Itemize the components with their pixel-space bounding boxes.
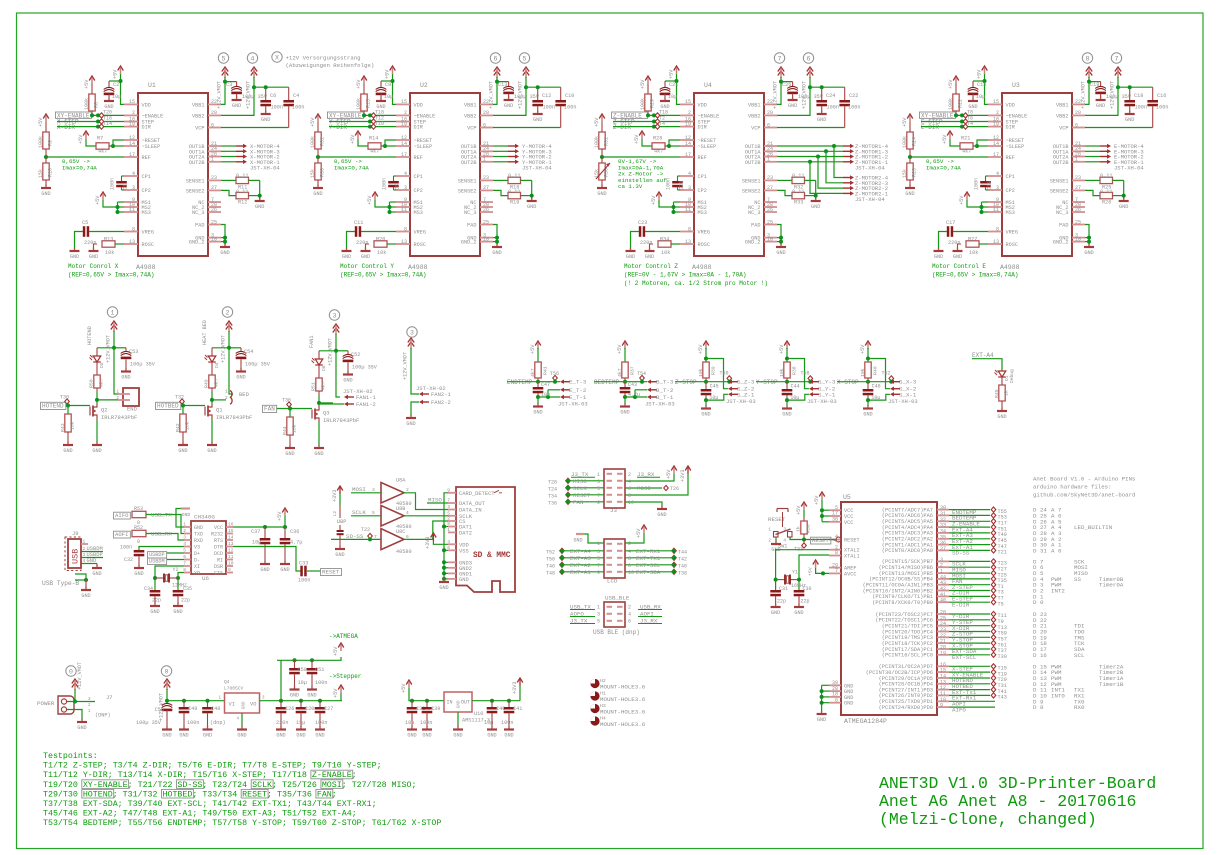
- svg-text:R44: R44: [282, 426, 288, 435]
- svg-text:4k7: 4k7: [962, 149, 971, 155]
- svg-text:17: 17: [129, 152, 135, 158]
- svg-text:IRLR7843PbF: IRLR7843PbF: [323, 417, 359, 424]
- svg-text:10µ: 10µ: [976, 94, 985, 100]
- svg-text:+5V: +5V: [367, 195, 373, 205]
- svg-text:25: 25: [483, 219, 489, 225]
- svg-text:100n: 100n: [564, 105, 576, 111]
- svg-text:7: 7: [597, 563, 600, 569]
- svg-text:VDD: VDD: [698, 102, 707, 108]
- svg-text:OUT2B: OUT2B: [1053, 160, 1069, 166]
- svg-text:19: 19: [129, 121, 135, 127]
- svg-text:GND: GND: [459, 577, 469, 583]
- svg-text:+5V: +5V: [112, 69, 118, 79]
- svg-text:(Abzweigungen Reihenfolge): (Abzweigungen Reihenfolge): [286, 62, 375, 69]
- svg-text:VBB2: VBB2: [1056, 113, 1068, 119]
- svg-text:C17: C17: [946, 220, 955, 226]
- svg-text:SD-SS: SD-SS: [952, 550, 970, 557]
- svg-text:EXT-RX1: EXT-RX1: [636, 548, 661, 555]
- svg-text:4k7: 4k7: [617, 368, 623, 377]
- svg-text:+5V: +5V: [796, 505, 802, 515]
- svg-text:U1: U1: [148, 82, 156, 89]
- svg-text:DATA_OUT: DATA_OUT: [459, 501, 486, 507]
- svg-text:100k: 100k: [948, 98, 954, 110]
- svg-text:4k7: 4k7: [98, 149, 107, 155]
- svg-text:100µ 35V: 100µ 35V: [136, 720, 162, 726]
- svg-text:IRLR7843PbF: IRLR7843PbF: [216, 414, 252, 421]
- svg-text:+5V: +5V: [814, 495, 820, 505]
- svg-text:(REF=0,65V > Imax=0,74A): (REF=0,65V > Imax=0,74A): [340, 272, 426, 279]
- svg-text:40580: 40580: [396, 549, 412, 555]
- svg-text:ca 1.3V: ca 1.3V: [618, 183, 643, 190]
- svg-text:R12: R12: [238, 200, 247, 206]
- svg-text:C53: C53: [129, 349, 138, 355]
- svg-text:17: 17: [685, 152, 691, 158]
- svg-text:15k: 15k: [310, 169, 316, 178]
- svg-text:0: 0: [137, 539, 140, 545]
- svg-text:220n: 220n: [640, 240, 652, 246]
- svg-text:C33: C33: [299, 561, 308, 567]
- svg-text:6: 6: [628, 618, 631, 624]
- svg-text:+5V: +5V: [668, 69, 674, 79]
- svg-text:GND: GND: [307, 693, 316, 699]
- svg-text:T21: T21: [998, 550, 1007, 556]
- svg-text:GND: GND: [817, 717, 826, 723]
- svg-text:R37: R37: [630, 366, 636, 375]
- svg-text:27: 27: [211, 185, 217, 191]
- svg-text:C9: C9: [385, 82, 391, 88]
- svg-text:13: 13: [993, 239, 999, 245]
- svg-text:VBB1: VBB1: [1056, 102, 1068, 108]
- svg-text:2: 2: [404, 110, 407, 116]
- svg-text:11: 11: [228, 554, 234, 560]
- svg-text:GND: GND: [817, 117, 826, 123]
- svg-text:1: 1: [597, 472, 600, 478]
- svg-text:SENSE2: SENSE2: [186, 188, 205, 194]
- svg-text:GND: GND: [597, 191, 606, 197]
- svg-text:100µ 35V: 100µ 35V: [130, 362, 156, 368]
- svg-text:19: 19: [940, 650, 946, 656]
- svg-text:C3: C3: [226, 82, 232, 88]
- svg-text:100n: 100n: [120, 545, 132, 551]
- svg-text:NC_3: NC_3: [748, 210, 760, 216]
- svg-text:10µ: 10µ: [384, 94, 393, 100]
- svg-text:4: 4: [406, 510, 409, 516]
- svg-text:T18: T18: [659, 110, 668, 116]
- svg-text:1: 1: [225, 390, 228, 395]
- svg-text:10k: 10k: [779, 368, 785, 377]
- svg-text:GND: GND: [620, 410, 629, 416]
- svg-text:~ENABLE: ~ENABLE: [414, 113, 436, 119]
- svg-text:CARD_DETECT: CARD_DETECT: [459, 491, 495, 497]
- svg-text:RESET: RESET: [573, 492, 591, 499]
- svg-text:HOTEND: HOTEND: [42, 403, 64, 410]
- svg-text:4k7: 4k7: [370, 149, 379, 155]
- svg-text:100µ 35V: 100µ 35V: [245, 362, 271, 368]
- svg-text:12: 12: [228, 548, 234, 554]
- svg-text:R22: R22: [958, 99, 964, 108]
- svg-text:Q2: Q2: [101, 407, 108, 414]
- svg-text:VBB1: VBB1: [748, 102, 760, 108]
- svg-text:15: 15: [401, 99, 407, 105]
- svg-text:R232: R232: [211, 532, 223, 538]
- svg-text:20: 20: [767, 110, 773, 116]
- svg-text:GND: GND: [92, 448, 101, 454]
- svg-text:C6: C6: [270, 93, 276, 99]
- svg-text:VREG: VREG: [142, 230, 154, 236]
- svg-text:2: 2: [225, 396, 228, 401]
- svg-text:1k: 1k: [1004, 390, 1010, 396]
- svg-text:R53: R53: [134, 506, 143, 512]
- svg-text:VCP: VCP: [467, 126, 476, 132]
- svg-text:15: 15: [228, 528, 234, 534]
- svg-text:T5: T5: [998, 601, 1004, 607]
- svg-text:6: 6: [494, 55, 498, 62]
- svg-text:2: 2: [447, 516, 450, 522]
- svg-text:GND: GND: [533, 410, 542, 416]
- svg-text:100k: 100k: [38, 136, 44, 148]
- svg-text:CTS: CTS: [214, 571, 223, 577]
- svg-text:ROSC: ROSC: [142, 242, 154, 248]
- svg-text:JST-XH-03: JST-XH-03: [726, 398, 756, 405]
- svg-text:XI: XI: [194, 564, 200, 570]
- svg-text:+5V: +5V: [530, 344, 536, 354]
- svg-text:4k7: 4k7: [98, 378, 104, 387]
- svg-text:10k: 10k: [70, 421, 76, 430]
- svg-text:VDD: VDD: [1006, 102, 1015, 108]
- svg-text:GND_2: GND_2: [745, 240, 761, 246]
- svg-text:AVCC: AVCC: [844, 571, 856, 577]
- svg-text:4: 4: [996, 171, 999, 177]
- svg-text:T36: T36: [548, 500, 557, 506]
- svg-text:SCLK: SCLK: [352, 509, 366, 516]
- svg-text:CP1: CP1: [414, 174, 423, 180]
- svg-text:GND: GND: [794, 610, 803, 616]
- svg-text:100k: 100k: [84, 98, 90, 110]
- svg-text:S_Y-3: S_Y-3: [818, 379, 836, 386]
- svg-text:+5V: +5V: [95, 195, 101, 205]
- svg-text:J7: J7: [106, 694, 113, 701]
- svg-text:TXD: TXD: [194, 532, 203, 538]
- svg-text:GND: GND: [406, 421, 415, 427]
- svg-text:+12V_VMOT: +12V_VMOT: [518, 81, 524, 109]
- svg-text:MOUNT-HOLE3.6: MOUNT-HOLE3.6: [600, 684, 646, 691]
- svg-text:R8: R8: [94, 102, 100, 108]
- svg-text:Motor Control Z: Motor Control Z: [624, 263, 678, 270]
- svg-text:T34: T34: [548, 493, 557, 499]
- svg-text:220n: 220n: [84, 240, 96, 246]
- svg-text:C37: C37: [251, 529, 260, 535]
- svg-text:C16: C16: [1157, 93, 1166, 99]
- svg-text:4: 4: [251, 55, 255, 62]
- svg-text:100k: 100k: [640, 98, 646, 110]
- svg-text:POWER: POWER: [37, 700, 55, 707]
- svg-text:2: 2: [406, 487, 409, 493]
- svg-text:OUT2B: OUT2B: [189, 160, 205, 166]
- svg-text:S_X-3: S_X-3: [899, 379, 917, 386]
- svg-text:23: 23: [211, 175, 217, 181]
- svg-text:GND: GND: [504, 733, 513, 739]
- svg-text:R13: R13: [104, 236, 113, 242]
- svg-text:C45: C45: [710, 384, 719, 390]
- svg-text:11: 11: [401, 207, 407, 213]
- svg-text:U8A: U8A: [396, 478, 406, 484]
- svg-text:(REF=0,65V > Imax=0,74A): (REF=0,65V > Imax=0,74A): [932, 272, 1018, 279]
- svg-text:GND: GND: [953, 254, 962, 260]
- svg-text:10µ: 10µ: [484, 720, 493, 726]
- svg-text:3: 3: [404, 185, 407, 191]
- svg-text:DCD: DCD: [214, 551, 223, 557]
- svg-text:C4: C4: [293, 93, 299, 99]
- svg-text:Z-DIR: Z-DIR: [613, 124, 631, 131]
- svg-text:~ENABLE: ~ENABLE: [142, 113, 164, 119]
- svg-text:VBB2: VBB2: [192, 113, 204, 119]
- svg-text:4: 4: [628, 479, 631, 485]
- svg-text:GND: GND: [934, 254, 943, 260]
- svg-text:GND: GND: [776, 250, 785, 256]
- svg-text:(DNP): (DNP): [95, 713, 111, 719]
- svg-text:IRLR7843PbF: IRLR7843PbF: [101, 414, 137, 421]
- svg-text:R31: R31: [320, 137, 326, 146]
- svg-text:GND: GND: [527, 204, 536, 210]
- svg-text:R38: R38: [792, 366, 798, 375]
- svg-text:SENSE2: SENSE2: [1050, 188, 1069, 194]
- svg-text:GND: GND: [504, 103, 513, 109]
- svg-text:GND: GND: [179, 733, 188, 739]
- svg-text:11: 11: [685, 207, 691, 213]
- svg-text:R23: R23: [912, 168, 918, 177]
- svg-text:D4: D4: [214, 362, 220, 368]
- svg-text:NC_3: NC_3: [1056, 210, 1068, 216]
- svg-text:R51: R51: [311, 382, 317, 391]
- svg-text:3: 3: [597, 549, 600, 555]
- svg-text:100n: 100n: [315, 720, 327, 726]
- svg-text:VREG: VREG: [1006, 230, 1018, 236]
- svg-text:T46: T46: [546, 563, 555, 569]
- svg-text:CP2: CP2: [698, 188, 707, 194]
- svg-text:(Melzi-Clone, changed): (Melzi-Clone, changed): [879, 810, 1097, 829]
- svg-text:C15: C15: [977, 82, 986, 88]
- svg-text:RESET: RESET: [768, 516, 786, 523]
- svg-text:+5V: +5V: [698, 344, 704, 354]
- svg-text:19: 19: [401, 121, 407, 127]
- svg-text:C20: C20: [305, 706, 314, 712]
- svg-text:GND: GND: [296, 733, 305, 739]
- svg-text:7: 7: [1115, 55, 1119, 62]
- svg-text:6: 6: [807, 55, 811, 62]
- svg-text:VDD: VDD: [142, 102, 151, 108]
- svg-text:2: 2: [116, 396, 119, 401]
- svg-text:14: 14: [993, 141, 999, 147]
- svg-text:2: 2: [83, 546, 86, 552]
- svg-text:+5V: +5V: [942, 134, 948, 144]
- svg-text:0.11: 0.11: [508, 189, 520, 195]
- svg-text:3: 3: [688, 185, 691, 191]
- svg-text:REF: REF: [142, 155, 151, 161]
- svg-text:100n: 100n: [666, 178, 672, 190]
- svg-text:10µ: 10µ: [252, 540, 261, 546]
- svg-text:Motor Control Y: Motor Control Y: [340, 263, 394, 270]
- svg-text:USB: USB: [71, 549, 81, 564]
- svg-text:SENSE2: SENSE2: [742, 188, 761, 194]
- svg-text:3: 3: [597, 611, 600, 617]
- svg-text:OUT: OUT: [461, 700, 470, 706]
- svg-text:1: 1: [111, 309, 115, 316]
- svg-text:MOUNT-HOLE3.6: MOUNT-HOLE3.6: [600, 709, 646, 716]
- svg-text:VCP: VCP: [751, 126, 760, 132]
- svg-text:C47: C47: [541, 382, 550, 388]
- svg-text:ATMEGA1284P: ATMEGA1284P: [844, 718, 887, 725]
- svg-text:1: 1: [597, 604, 600, 610]
- svg-text:(PCINT16/SCL)PC0: (PCINT16/SCL)PC0: [882, 653, 933, 659]
- svg-text:+5V: +5V: [356, 79, 362, 89]
- svg-text:GND: GND: [1084, 250, 1093, 256]
- svg-text:19: 19: [685, 121, 691, 127]
- svg-text:GND: GND: [63, 448, 72, 454]
- svg-text:GND: GND: [285, 451, 294, 457]
- svg-text:C35: C35: [183, 586, 192, 592]
- svg-text:GND: GND: [41, 191, 50, 197]
- svg-text:SENSE1: SENSE1: [458, 178, 477, 184]
- svg-text:GND: GND: [313, 191, 322, 197]
- svg-text:IN: IN: [447, 700, 453, 706]
- svg-text:6: 6: [767, 122, 770, 128]
- svg-text:U8B: U8B: [396, 506, 405, 512]
- svg-text:EXT-A1: EXT-A1: [570, 569, 591, 576]
- svg-text:4k7: 4k7: [530, 368, 536, 377]
- svg-text:USBDM: USBDM: [149, 559, 165, 565]
- svg-text:J9: J9: [72, 530, 79, 537]
- svg-text:22p: 22p: [801, 599, 810, 605]
- svg-text:GND: GND: [81, 593, 90, 599]
- svg-text:FAN1: FAN1: [309, 336, 315, 348]
- svg-text:GND: GND: [1119, 204, 1128, 210]
- svg-text:27: 27: [1075, 185, 1081, 191]
- svg-text:C12: C12: [542, 93, 551, 99]
- svg-text:RI: RI: [217, 558, 223, 564]
- svg-text:26: 26: [483, 207, 489, 213]
- svg-text:100n: 100n: [187, 720, 199, 726]
- svg-text:LED_BUILTIN: LED_BUILTIN: [1074, 524, 1113, 531]
- svg-text:T53/T54 BEDTEMP; T55/T56 ENDTE: T53/T54 BEDTEMP; T55/T56 ENDTEMP; T57/T5…: [43, 818, 441, 828]
- svg-text:VBB1: VBB1: [192, 102, 204, 108]
- svg-text:JST-XH-04: JST-XH-04: [250, 165, 280, 172]
- svg-text:2: 2: [132, 110, 135, 116]
- svg-text:8: 8: [1086, 55, 1090, 62]
- svg-text:Motor Conrol X: Motor Conrol X: [68, 263, 119, 270]
- svg-text:6: 6: [483, 122, 486, 128]
- svg-text:T10: T10: [375, 121, 384, 127]
- svg-text:T54: T54: [637, 371, 646, 377]
- svg-text:5: 5: [597, 556, 600, 562]
- svg-text:R45: R45: [994, 389, 1000, 398]
- svg-text:DATA_IN: DATA_IN: [459, 508, 482, 514]
- svg-text:RESET: RESET: [322, 569, 340, 576]
- svg-text:27: 27: [483, 185, 489, 191]
- svg-text:15: 15: [685, 99, 691, 105]
- svg-text:FAN: FAN: [573, 499, 584, 506]
- svg-text:GND_2: GND_2: [189, 240, 205, 246]
- svg-text:GND: GND: [243, 701, 247, 709]
- svg-text:+5V: +5V: [651, 195, 657, 205]
- svg-text:Imax=0,74A: Imax=0,74A: [926, 164, 961, 171]
- svg-text:RTS: RTS: [214, 538, 223, 544]
- svg-text:15: 15: [129, 99, 135, 105]
- svg-text:C36: C36: [290, 529, 299, 535]
- svg-text:SCL: SCL: [1074, 652, 1085, 659]
- svg-text:~ENABLE: ~ENABLE: [1006, 113, 1028, 119]
- svg-text:MS3: MS3: [1006, 210, 1015, 216]
- svg-text:10k: 10k: [292, 424, 298, 433]
- svg-text:OUT2B: OUT2B: [745, 160, 761, 166]
- svg-text:A4988: A4988: [136, 264, 156, 271]
- svg-text:JST-XH-04: JST-XH-04: [1114, 165, 1144, 172]
- svg-text:GND: GND: [771, 610, 780, 616]
- svg-text:JST-XH-04: JST-XH-04: [855, 165, 885, 172]
- svg-text:R29: R29: [650, 99, 656, 108]
- svg-text:15: 15: [993, 99, 999, 105]
- svg-text:GND: GND: [1125, 117, 1134, 123]
- svg-text:C49: C49: [188, 706, 197, 712]
- svg-text:GND: GND: [182, 512, 191, 518]
- svg-text:~SLEEP: ~SLEEP: [142, 144, 161, 150]
- svg-text:ROSC: ROSC: [1006, 242, 1018, 248]
- svg-text:26: 26: [767, 207, 773, 213]
- svg-text:R24: R24: [912, 137, 918, 146]
- svg-text:7: 7: [835, 568, 838, 574]
- svg-text:(PCINT8/XCK0/T0)PB0: (PCINT8/XCK0/T0)PB0: [872, 600, 933, 606]
- svg-text:5: 5: [222, 55, 226, 62]
- svg-text:27: 27: [767, 185, 773, 191]
- svg-text:(! 2 Motoren, ca. 1/2 Strom pr: (! 2 Motoren, ca. 1/2 Strom pro Motor !): [624, 280, 768, 287]
- svg-text:MISO: MISO: [573, 478, 587, 485]
- svg-text:MOUNT-HOLE3.6: MOUNT-HOLE3.6: [600, 721, 646, 728]
- svg-text:100n: 100n: [110, 178, 116, 190]
- svg-text:HOTEND: HOTEND: [87, 326, 93, 345]
- svg-text:9: 9: [228, 567, 231, 573]
- svg-text:REF: REF: [698, 155, 707, 161]
- svg-text:CP2: CP2: [1006, 188, 1015, 194]
- svg-text:C54: C54: [244, 349, 253, 355]
- svg-text:T32: T32: [175, 395, 184, 401]
- svg-text:HOTBED: HOTBED: [157, 403, 179, 410]
- svg-text:100n: 100n: [974, 178, 980, 190]
- svg-text:25: 25: [211, 219, 217, 225]
- svg-text:DTR: DTR: [214, 545, 223, 551]
- svg-text:+12V_VMOT: +12V_VMOT: [328, 338, 334, 366]
- svg-text:T30: T30: [60, 395, 69, 401]
- svg-text:10k: 10k: [185, 421, 191, 430]
- svg-text:R43: R43: [60, 423, 66, 432]
- svg-text:4: 4: [628, 549, 631, 555]
- svg-text:10µ: 10µ: [405, 720, 414, 726]
- svg-text:40: 40: [940, 598, 946, 604]
- svg-text:JST-XH-04: JST-XH-04: [522, 165, 552, 172]
- svg-text:(PCINT24/RXD0)PD0: (PCINT24/RXD0)PD0: [879, 705, 933, 711]
- svg-text:0.11: 0.11: [236, 189, 248, 195]
- svg-text:19: 19: [993, 121, 999, 127]
- svg-text:DSR: DSR: [214, 564, 223, 570]
- svg-text:GND: GND: [811, 204, 820, 210]
- svg-text:15k: 15k: [902, 169, 908, 178]
- svg-text:25: 25: [1075, 219, 1081, 225]
- svg-text:100µ 35V: 100µ 35V: [352, 365, 378, 371]
- svg-text:10µ: 10µ: [790, 395, 799, 401]
- svg-text:VCP: VCP: [1059, 126, 1068, 132]
- svg-text:CP1: CP1: [142, 174, 151, 180]
- svg-text:+3V3: +3V3: [332, 490, 338, 502]
- svg-text:(PCINT0/ADC0)PA0: (PCINT0/ADC0)PA0: [882, 548, 933, 554]
- svg-text:C23: C23: [638, 220, 647, 226]
